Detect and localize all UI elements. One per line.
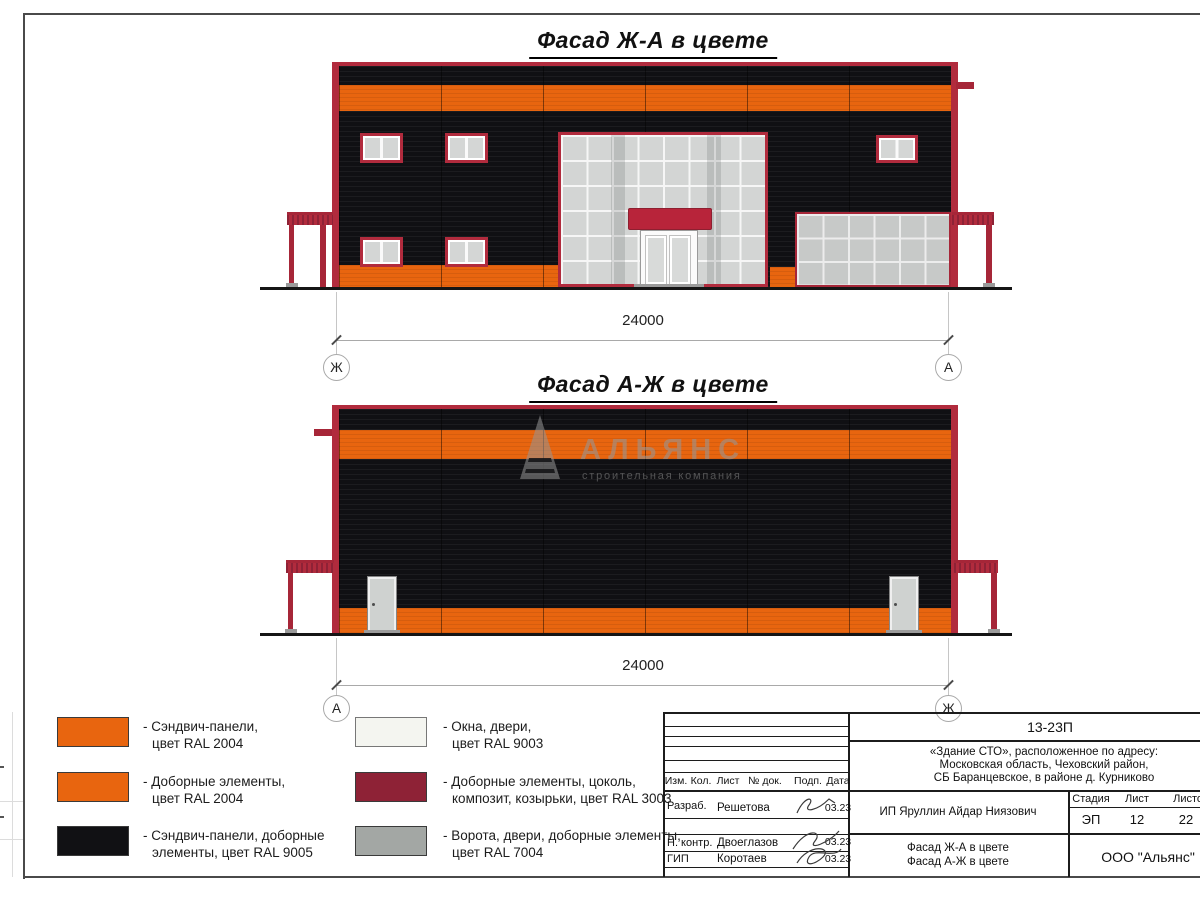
facade2-title: Фасад А-Ж в цвете: [529, 371, 777, 403]
stamp-sheet-title-line2: Фасад А-Ж в цвете: [907, 856, 1009, 868]
facade1-window-upper-1: [360, 133, 403, 163]
margin-line-h1: [0, 801, 23, 802]
entrance-door-leaf-left: [646, 236, 666, 284]
watermark: АЛЬЯНС строительная компания: [518, 412, 778, 484]
stamp-sheet-title-line1: Фасад Ж-А в цвете: [907, 842, 1009, 854]
facade2-axis-left: А: [323, 695, 350, 722]
margin-line-vertical: [12, 712, 13, 877]
stamp-header-kol: Кол.: [691, 775, 712, 787]
facade1-axis-right: А: [935, 354, 962, 381]
facade1-extension-right: [948, 292, 949, 354]
axis-letter: Ж: [330, 360, 342, 375]
stamp-header-data: Дата: [826, 775, 849, 787]
watermark-name: АЛЬЯНС: [580, 434, 746, 467]
facade1-canopy-left-post-outer: [289, 225, 294, 287]
facade1-canopy-left: [287, 212, 333, 225]
stamp-line: [848, 740, 1200, 742]
watermark-subtitle: строительная компания: [582, 470, 742, 482]
stamp-line: [663, 760, 848, 761]
facade1-window-upper-right: [876, 135, 918, 163]
facade2-canopy-right-post: [991, 573, 997, 633]
legend-swatch-white: [355, 717, 427, 747]
stamp-line: [848, 833, 1200, 835]
axis-letter: А: [944, 360, 953, 375]
stamp-name-gip: Коротаев: [717, 853, 767, 865]
facade1-wall: [339, 66, 951, 287]
page-frame-bottom: [23, 876, 1200, 878]
entrance-door-leaf-right: [670, 236, 690, 284]
axis-letter: А: [332, 701, 341, 716]
stamp-line: [663, 712, 1200, 714]
drawing-sheet: { "sheet": { "facade1": { "title": "Фаса…: [0, 0, 1200, 900]
stamp-sheet-header: Лист: [1125, 793, 1149, 805]
alliance-pyramid-logo: [520, 414, 560, 480]
facade1-ground-line: [260, 287, 1012, 290]
margin-tick-1: [0, 766, 4, 768]
facade1-canopy-left-post-inner: [320, 225, 326, 287]
stamp-line: [663, 726, 848, 727]
legend-label: - Доборные элементы,цвет RAL 2004: [143, 773, 285, 807]
stamp-address-line2: Московская область, Чеховский район,: [940, 759, 1149, 771]
stamp-address-line1: «Здание СТО», расположенное по адресу:: [930, 746, 1158, 758]
stamp-client: ИП Яруллин Айдар Ниязович: [880, 806, 1037, 818]
facade1-window-upper-2: [445, 133, 488, 163]
legend-swatch-sandwich-orange: [57, 717, 129, 747]
facade1-window-lower-2: [445, 237, 488, 267]
legend-swatch-grey: [355, 826, 427, 856]
facade1-axis-left: Ж: [323, 354, 350, 381]
stamp-header-ndok: № док.: [748, 775, 782, 787]
margin-tick-2: [0, 816, 4, 818]
stamp-address-line3: СБ Баранцевское, в районе д. Курниково: [934, 772, 1154, 784]
stamp-name-razrab: Решетова: [717, 802, 770, 814]
legend-label: - Сэндвич-панели,цвет RAL 2004: [143, 718, 258, 752]
facade2-extension-right: [948, 638, 949, 698]
facade1-entrance-door: [640, 230, 698, 287]
facade1-sectional-gate: [795, 212, 951, 287]
facade1-roof-beam: [956, 82, 974, 89]
stamp-sheets-header: Листов: [1173, 793, 1200, 805]
stamp-stage-header: Стадия: [1072, 793, 1110, 805]
stamp-name-nkontr: Двоеглазов: [717, 837, 778, 849]
facade2-extension-left: [336, 638, 337, 698]
stamp-line: [663, 746, 848, 747]
stamp-role-nkontr: Н. контр.: [667, 837, 712, 849]
legend-label: - Доборные элементы, цоколь,композит, ко…: [443, 773, 672, 807]
facade1-window-lower-1: [360, 237, 403, 267]
facade1-entrance-signboard: [628, 208, 712, 230]
legend-swatch-dark-red: [355, 772, 427, 802]
legend-swatch-black: [57, 826, 129, 856]
facade2-door-right: [890, 577, 918, 633]
stamp-company: ООО "Альянс": [1101, 849, 1195, 865]
facade2-canopy-right: [954, 560, 998, 573]
facade1-extension-left: [336, 292, 337, 354]
stamp-stage-value: ЭП: [1082, 812, 1101, 827]
stamp-line: [663, 772, 848, 773]
facade2-dimension-line: [336, 685, 949, 686]
facade1-canopy-right-post: [986, 225, 992, 287]
facade1-drawing: [332, 62, 958, 287]
facade2-door-left: [368, 577, 396, 633]
legend-label: - Окна, двери,цвет RAL 9003: [443, 718, 543, 752]
page-frame-left: [23, 13, 25, 879]
facade1-dimension-line: [336, 340, 949, 341]
page-frame-top: [23, 13, 1200, 15]
margin-line-h2: [0, 839, 23, 840]
facade2-canopy-left-post: [288, 573, 293, 633]
legend-swatch-trim-orange: [57, 772, 129, 802]
stamp-header-podp: Подп.: [794, 775, 822, 787]
stamp-role-razrab: Разраб.: [667, 800, 707, 812]
facade2-roof-beam: [314, 429, 332, 436]
legend-label: - Сэндвич-панели, доборныеэлементы, цвет…: [143, 827, 325, 861]
facade1-title: Фасад Ж-А в цвете: [529, 27, 777, 59]
facade2-canopy-left: [286, 560, 334, 573]
stamp-sheet-value: 12: [1130, 812, 1144, 827]
facade2-ground-line: [260, 633, 1012, 636]
stamp-line: [663, 736, 848, 737]
stamp-line: [663, 790, 1200, 792]
stamp-header-izm: Изм.: [665, 775, 688, 787]
stamp-line: [1068, 807, 1200, 808]
stamp-role-gip: ГИП: [667, 853, 689, 865]
facade1-dimension-value: 24000: [622, 312, 664, 329]
facade2-axis-right: Ж: [935, 695, 962, 722]
legend-label: - Ворота, двери, доборные элементы,цвет …: [443, 827, 681, 861]
facade1-canopy-right: [952, 212, 994, 225]
curtain-shade-strip-1: [611, 135, 625, 284]
handwritten-signatures: [789, 791, 847, 875]
stamp-doc-number: 13-23П: [1027, 719, 1073, 735]
stamp-sheets-value: 22: [1179, 812, 1193, 827]
facade2-dimension-value: 24000: [622, 657, 664, 674]
stamp-header-list: Лист: [717, 775, 740, 787]
